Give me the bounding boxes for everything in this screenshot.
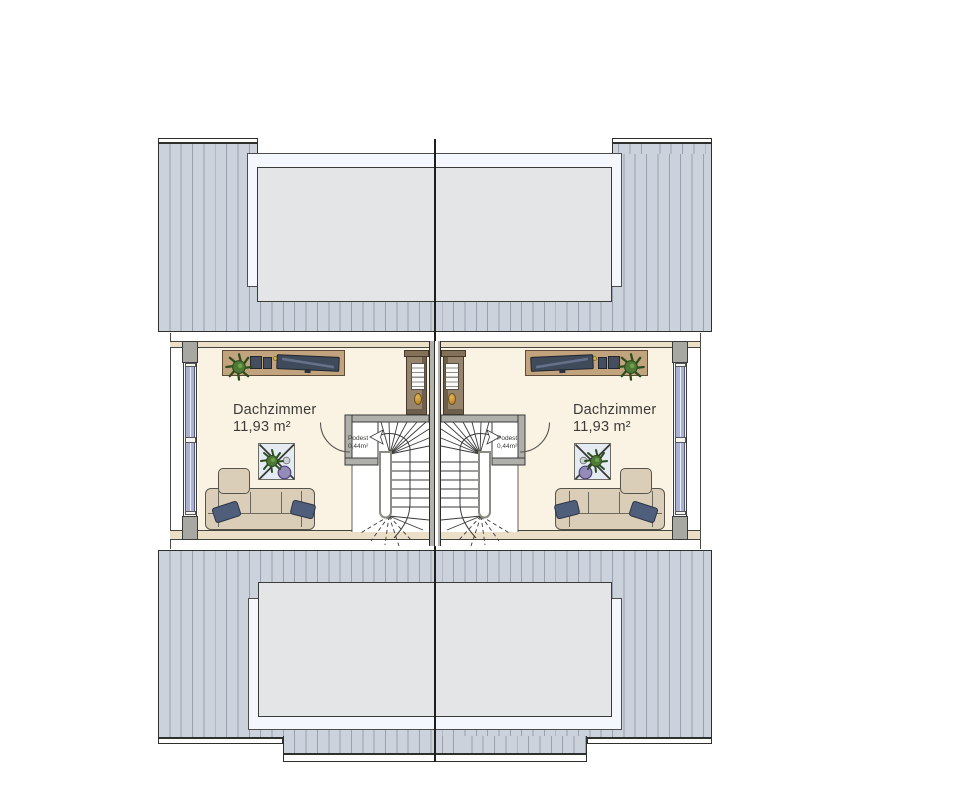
floor-plan-canvas: Dachzimmer 11,93 m² Dachzimmer 11,93 m² … (0, 0, 956, 800)
sideboard-plant-left (226, 354, 251, 379)
table-left-vase (283, 457, 290, 464)
landing-left-area: 0,44m² (348, 443, 368, 451)
room-left-area: 11,93 m² (233, 419, 316, 436)
party-wall (429, 341, 441, 546)
room-label-right: Dachzimmer 11,93 m² (573, 402, 656, 435)
party-wall-core (434, 341, 438, 546)
staircase-left (321, 415, 430, 546)
staircase-right (441, 415, 550, 546)
landing-label-right: Podest 0,44m² (497, 435, 517, 450)
tv-right (531, 355, 594, 375)
tv-left (277, 355, 340, 375)
landing-right-area: 0,44m² (497, 443, 517, 451)
room-right-area: 11,93 m² (573, 419, 656, 436)
room-label-left: Dachzimmer 11,93 m² (233, 402, 316, 435)
landing-right-name: Podest (497, 435, 517, 443)
table-plant-right (585, 450, 607, 472)
table-plant-left (261, 450, 283, 472)
sideboard-plant-right (618, 354, 643, 379)
room-right-name: Dachzimmer (573, 402, 656, 419)
landing-left-name: Podest (348, 435, 368, 443)
plan-detail-overlay (0, 0, 956, 800)
landing-label-left: Podest 0,44m² (348, 435, 368, 450)
room-left-name: Dachzimmer (233, 402, 316, 419)
